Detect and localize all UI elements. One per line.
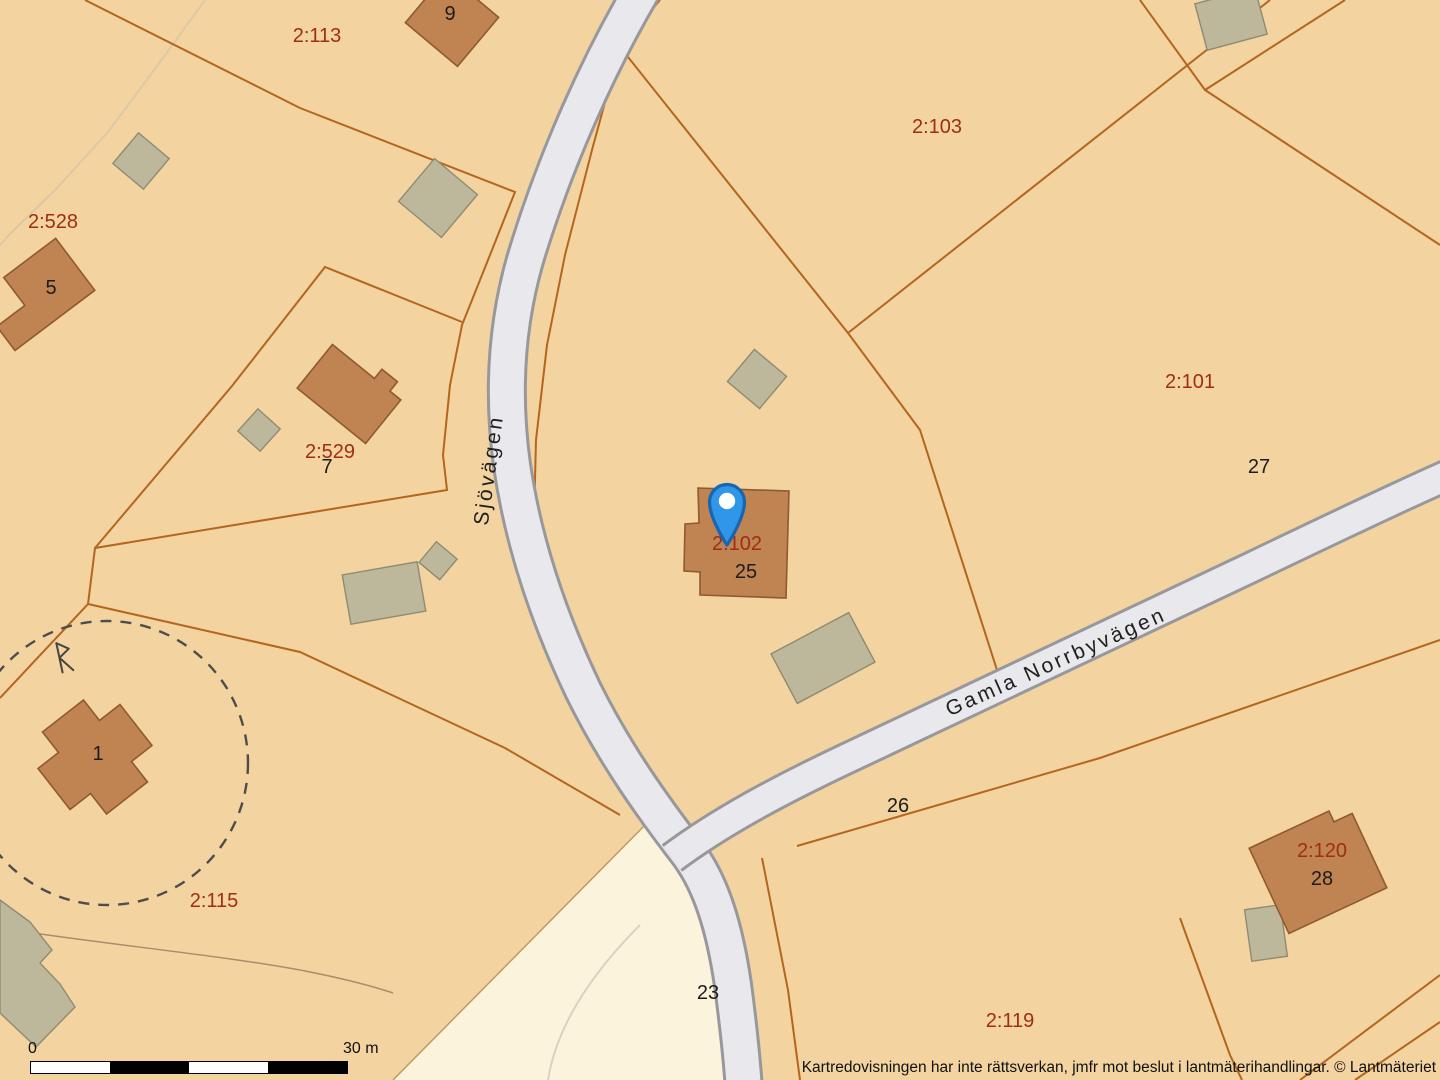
scale-bar (30, 1061, 348, 1074)
house-number-23: 23 (697, 983, 719, 1003)
parcel-label-2-528: 2:528 (28, 212, 78, 232)
house-number-7: 7 (321, 457, 332, 477)
parcel-label-2-115: 2:115 (190, 891, 239, 911)
outbuilding (399, 159, 478, 238)
outbuilding (113, 133, 169, 189)
parcel-label-2-103: 2:103 (912, 117, 962, 137)
parcel-boundary (0, 0, 515, 698)
parcel-boundary (762, 858, 800, 1080)
outbuilding (0, 900, 75, 1047)
parcel-boundary (1140, 0, 1440, 245)
house-number-27: 27 (1248, 457, 1270, 477)
house-number-5: 5 (45, 278, 56, 298)
parcel-label-2-113: 2:113 (293, 26, 342, 46)
parcel-boundary (1180, 918, 1242, 1080)
location-pin-icon[interactable] (704, 481, 750, 549)
parcel-boundary (848, 333, 1005, 695)
outbuilding (238, 409, 280, 451)
house-number-25: 25 (735, 562, 757, 582)
parcel-label-2-101: 2:101 (1165, 372, 1215, 392)
scale-end-label: 30 m (343, 1040, 379, 1058)
rune-monument-icon (56, 641, 73, 673)
parcel-boundary (620, 47, 848, 333)
outbuilding (419, 542, 457, 580)
house-number-9: 9 (444, 4, 455, 24)
house-number-26: 26 (887, 796, 909, 816)
parcel-label-2-119: 2:119 (986, 1011, 1035, 1031)
outbuilding (1195, 0, 1267, 50)
house-number-28: 28 (1311, 869, 1333, 889)
footpath (0, 0, 205, 245)
building-7 (297, 335, 408, 443)
attribution-text: Kartredovisningen har inte rättsverkan, … (802, 1059, 1436, 1077)
outbuilding (727, 349, 786, 408)
outbuilding (342, 562, 426, 624)
parcel-label-2-120: 2:120 (1297, 841, 1347, 861)
scale-start-label: 0 (28, 1040, 37, 1058)
cadastral-map[interactable]: 2:1132:5282:5292:1032:1012:1022:1152:119… (0, 0, 1440, 1080)
parcel-boundary (95, 267, 462, 548)
outbuilding (771, 613, 875, 704)
house-number-1: 1 (92, 744, 103, 764)
